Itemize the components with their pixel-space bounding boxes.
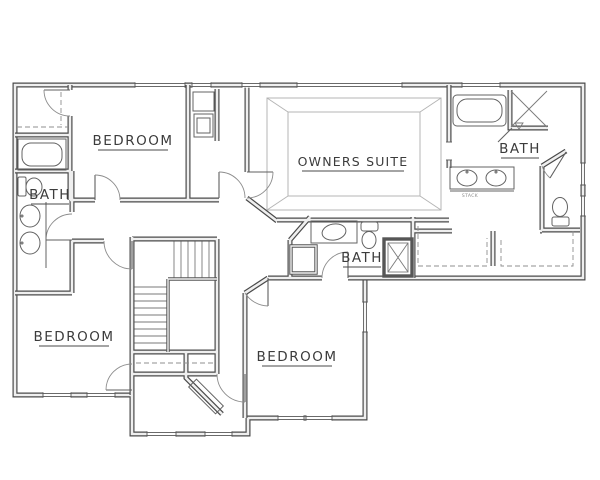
room-label-bedroom-top-left: BEDROOM: [93, 133, 174, 149]
floor-plan: BEDROOM OWNERS SUITE BATH BATH BATH BEDR…: [0, 0, 600, 480]
room-label-bath-left: BATH: [29, 187, 71, 203]
room-label-bedroom-bottom-center: BEDROOM: [257, 349, 338, 365]
window: [462, 82, 500, 88]
window: [205, 431, 232, 437]
door: [106, 364, 132, 390]
window: [135, 82, 185, 88]
window: [147, 431, 176, 437]
vanity-sink-icon: [311, 221, 357, 243]
sink-icon: [20, 205, 40, 227]
window: [297, 82, 402, 88]
room-label-bedroom-bottom-left: BEDROOM: [34, 329, 115, 345]
window: [306, 415, 332, 421]
door: [247, 172, 273, 198]
door: [104, 241, 132, 269]
floor-plan-svg: BEDROOM OWNERS SUITE BATH BATH BATH BEDR…: [0, 0, 600, 480]
room-label-bath-owners: BATH: [499, 141, 541, 157]
window: [580, 196, 586, 216]
shower-icon: [384, 239, 412, 276]
freestanding-tub-icon: [453, 95, 506, 126]
window: [242, 82, 260, 88]
toilet-icon: [552, 198, 569, 227]
door: [219, 172, 245, 198]
window: [87, 392, 115, 398]
shower-door: [498, 128, 512, 142]
window: [580, 163, 586, 185]
room-label-owners-suite: OWNERS SUITE: [298, 154, 409, 169]
corner-shower-icon: [511, 91, 547, 129]
toilet-icon: [361, 222, 378, 249]
window: [192, 82, 211, 88]
double-vanity-icon: [450, 167, 514, 191]
window: [43, 392, 71, 398]
labels: BEDROOM OWNERS SUITE BATH BATH BATH BEDR…: [29, 133, 541, 366]
door: [44, 90, 70, 116]
door: [95, 175, 120, 200]
vanity-note-label: STACK: [462, 193, 479, 199]
door: [217, 374, 245, 402]
room-label-bath-center: BATH: [341, 250, 383, 266]
door: [46, 214, 72, 240]
window: [278, 415, 304, 421]
sink-icon: [20, 232, 40, 254]
bathtub-icon: [18, 139, 66, 170]
window: [362, 302, 368, 332]
staircase: [134, 242, 209, 344]
washer-dryer-icon: [193, 92, 214, 137]
